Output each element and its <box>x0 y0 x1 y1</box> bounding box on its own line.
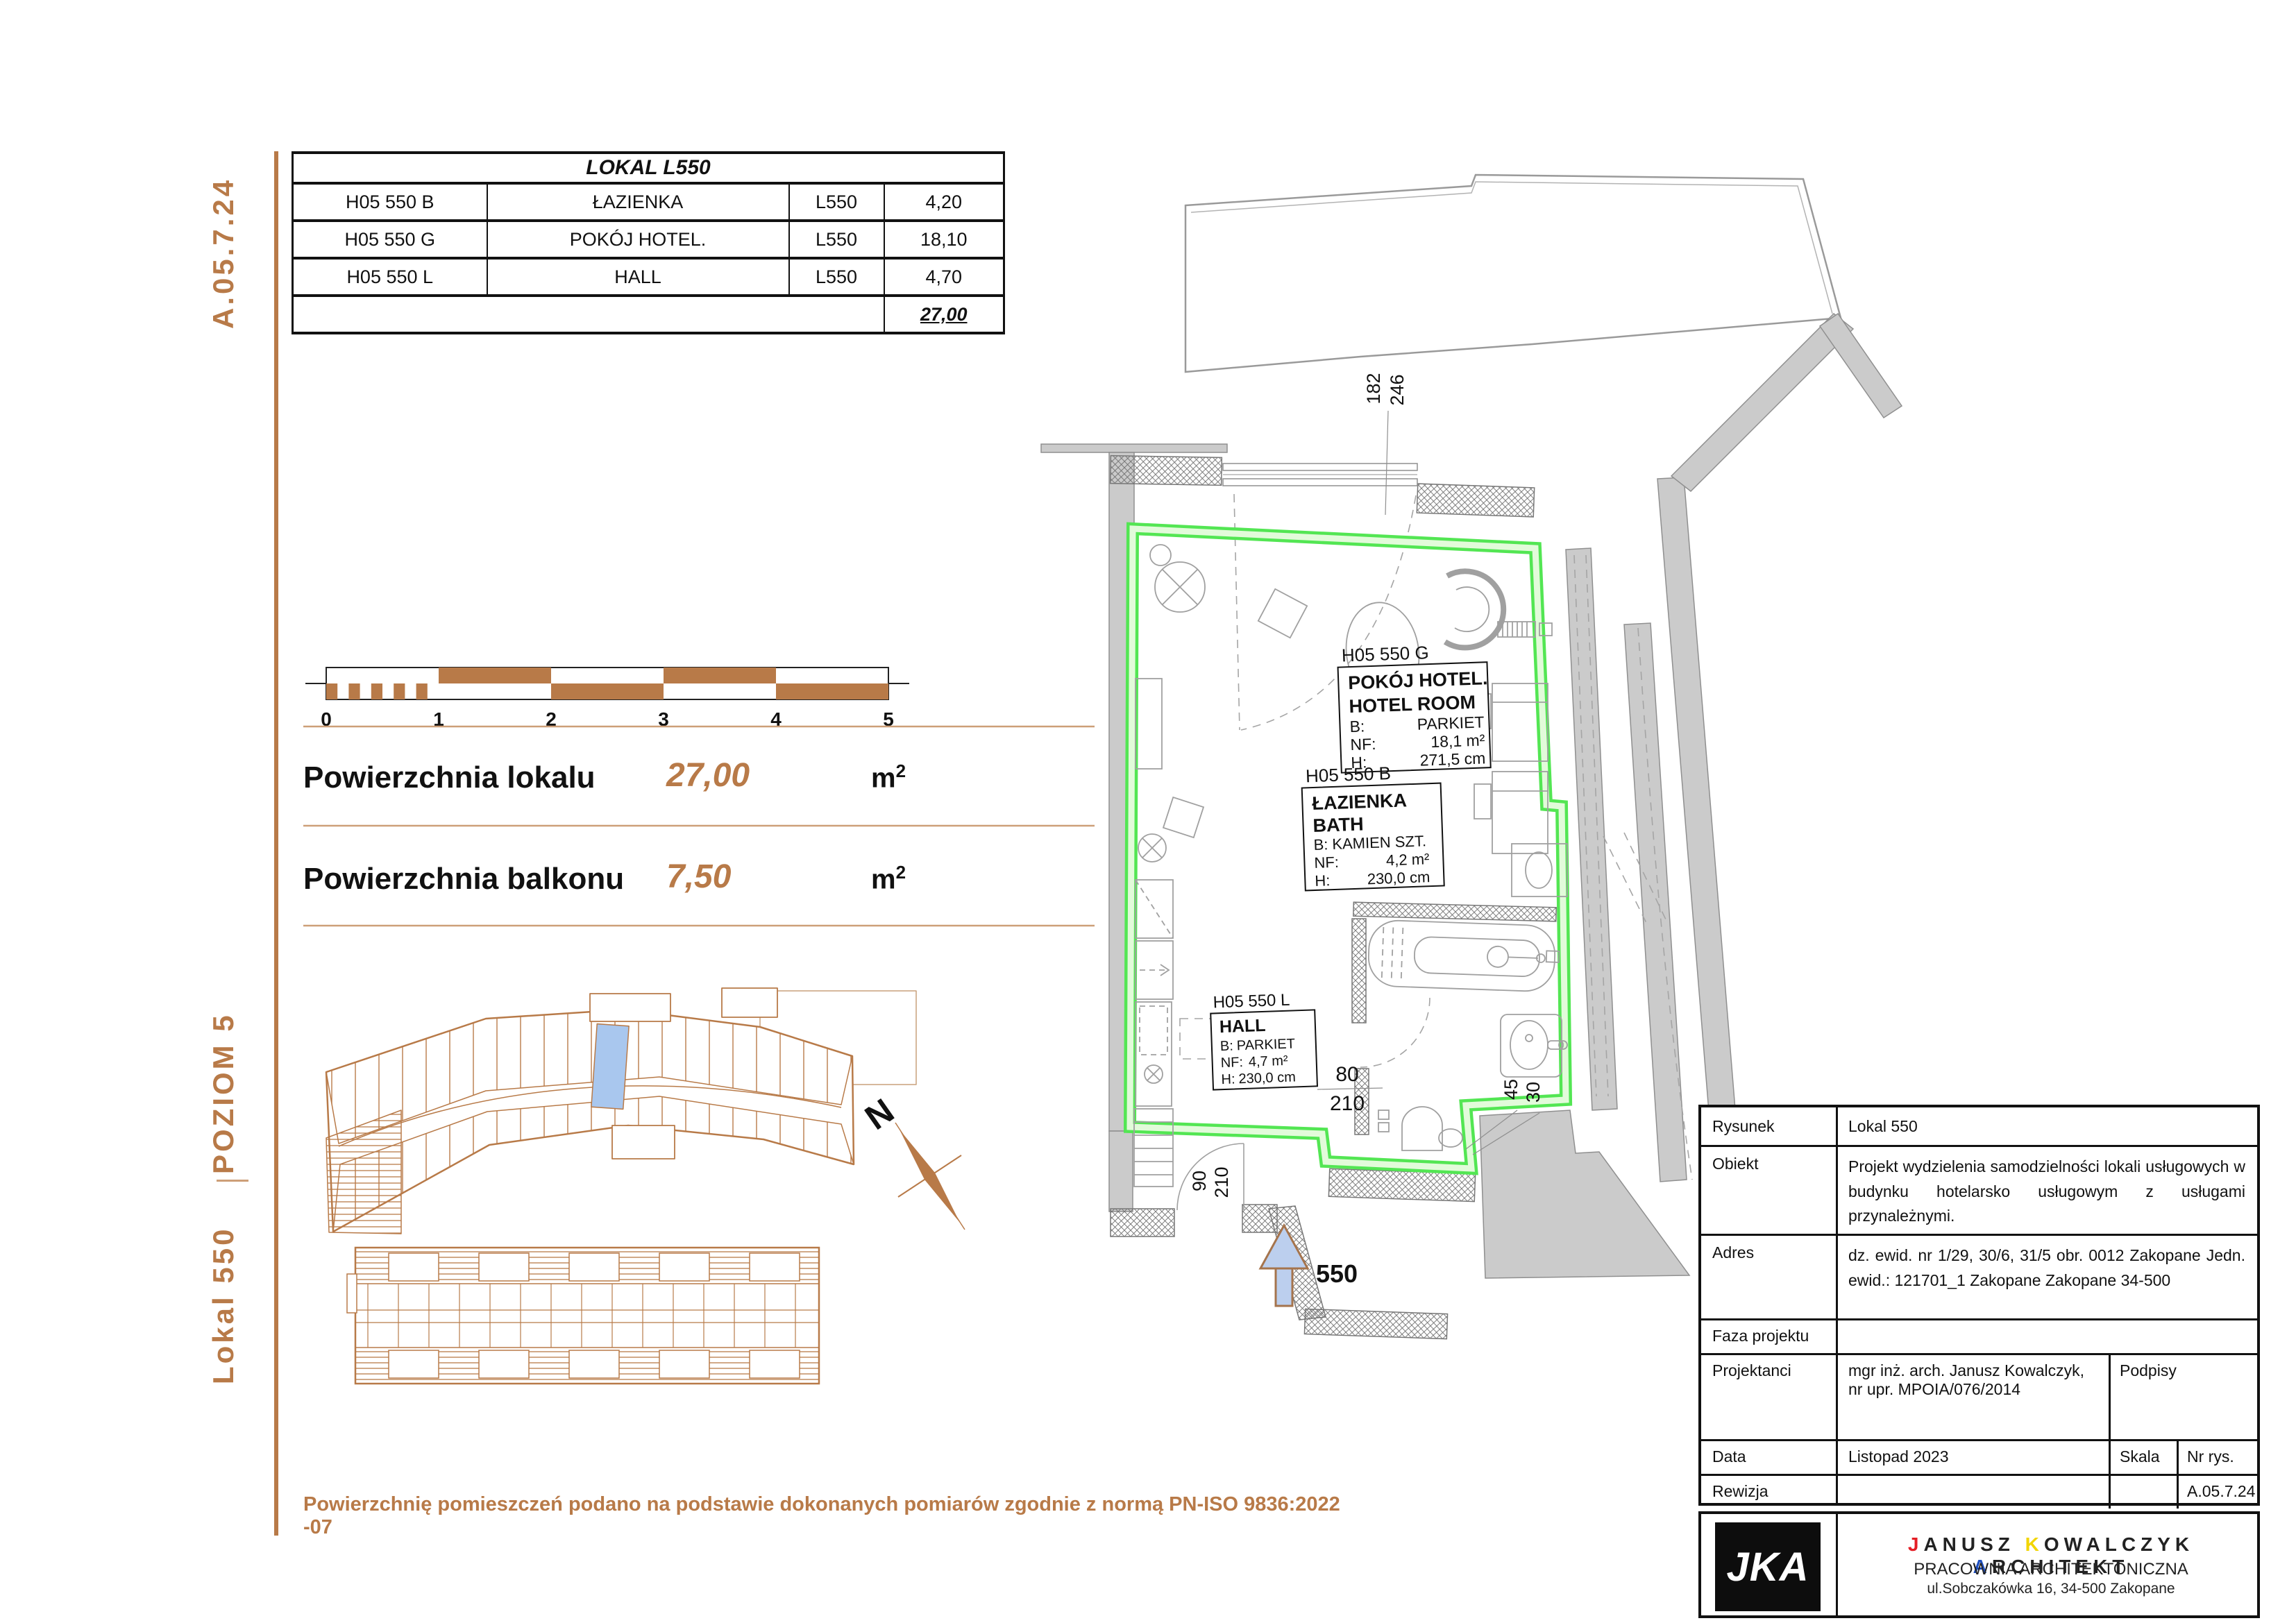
lokal-table: LOKAL L550 H05 550 B ŁAZIENKA L550 4,20 … <box>292 151 1005 334</box>
tb-nr-label: Nr rys. <box>2187 1447 2234 1466</box>
svg-text:H05 550 B: H05 550 B <box>1306 763 1392 786</box>
tb-data-value: Listopad 2023 <box>1848 1447 1949 1466</box>
dimension-entry-door: 90 210 <box>1189 1166 1232 1198</box>
tb-adres-label: Adres <box>1712 1243 1754 1262</box>
svg-text:BATH: BATH <box>1312 813 1364 836</box>
bathtub-icon <box>1367 919 1560 992</box>
area-balcony-unit: m2 <box>871 862 906 895</box>
svg-text:H05 550 G: H05 550 G <box>1341 642 1429 665</box>
area-balcony-value: 7,50 <box>666 858 731 896</box>
svg-text:30: 30 <box>1523 1082 1544 1103</box>
svg-text:H:230,0 cm: H:230,0 cm <box>1221 1069 1296 1087</box>
area-balcony-label: Powierzchnia balkonu <box>303 862 624 897</box>
svg-text:182: 182 <box>1363 373 1384 404</box>
tb-rewizja-label: Rewizja <box>1712 1482 1769 1501</box>
tb-podpisy-label: Podpisy <box>2120 1361 2177 1380</box>
level-label-vertical: POZIOM 5 <box>207 1014 240 1174</box>
tb-projektanci-value: mgr inż. arch. Janusz Kowalczyk, nr upr.… <box>1848 1361 2098 1399</box>
dimension-window: 182 246 <box>1363 373 1408 515</box>
tb-rysunek-label: Rysunek <box>1712 1117 1774 1136</box>
tb-faza-label: Faza projektu <box>1712 1327 1809 1345</box>
entry-door <box>1177 1144 1244 1210</box>
logo-address-line: ul.Sobczakówka 16, 34-500 Zakopane <box>1850 1581 2252 1597</box>
left-rail-line <box>274 151 278 1536</box>
toilet-icon <box>1378 1107 1462 1150</box>
title-block: Rysunek Lokal 550 Obiekt Projekt wydziel… <box>1698 1105 2260 1506</box>
unit-label-vertical: Lokal 550 <box>207 1232 240 1384</box>
area-local-value: 27,00 <box>666 756 750 794</box>
lokal-table-title: LOKAL L550 <box>293 153 1004 183</box>
svg-text:45: 45 <box>1501 1079 1521 1100</box>
table-total-value: 27,00 <box>884 296 1004 333</box>
key-plan-roof <box>347 1248 819 1384</box>
room-label-bath: H05 550 B ŁAZIENKA BATH B:KAMIEN SZT. NF… <box>1301 761 1444 891</box>
svg-text:ŁAZIENKA: ŁAZIENKA <box>1312 790 1407 814</box>
tb-adres-value: dz. ewid. nr 1/29, 30/6, 31/5 obr. 0012 … <box>1848 1243 2245 1293</box>
area-local-label: Powierzchnia lokalu <box>303 760 596 795</box>
room-label-hall: H05 550 L HALL B:PARKIET NF:4,7 m² H:230… <box>1210 989 1317 1089</box>
table-row: H05 550 L HALL L550 4,70 <box>293 258 1004 296</box>
key-plan-level5 <box>326 988 916 1234</box>
highlighted-unit-550 <box>591 1024 629 1110</box>
sink-icon <box>1501 1014 1567 1077</box>
terrace-outline <box>1185 175 1841 372</box>
jka-logo: JKA <box>1715 1522 1821 1611</box>
table-total-row: 27,00 <box>293 296 1004 333</box>
tb-rysunek-value: Lokal 550 <box>1848 1117 1918 1136</box>
table-row: H05 550 B ŁAZIENKA L550 4,20 <box>293 183 1004 221</box>
logo-studio-line: PRACOWNIA ARCHITEKTONICZNA <box>1850 1560 2252 1579</box>
window <box>1223 464 1417 486</box>
svg-text:H05 550 L: H05 550 L <box>1213 991 1290 1012</box>
svg-text:B:PARKIET: B:PARKIET <box>1220 1036 1296 1054</box>
svg-text:210: 210 <box>1330 1092 1365 1115</box>
svg-text:90: 90 <box>1189 1171 1210 1191</box>
tb-projektanci-label: Projektanci <box>1712 1361 1791 1380</box>
scale-bar: 0 1 2 3 4 5 <box>305 668 909 730</box>
area-summary-local: Powierzchnia lokalu 27,00 m2 <box>303 751 1095 806</box>
footer-note: Powierzchnię pomieszczeń podano na podst… <box>303 1493 1358 1539</box>
svg-text:NF:4,7 m²: NF:4,7 m² <box>1220 1053 1288 1071</box>
svg-text:210: 210 <box>1211 1166 1232 1198</box>
dimension-bath-door: 80 210 <box>1317 1063 1383 1115</box>
area-summary-balcony: Powierzchnia balkonu 7,50 m2 <box>303 852 1095 908</box>
svg-text:80: 80 <box>1335 1063 1358 1086</box>
tb-data-label: Data <box>1712 1447 1746 1466</box>
svg-text:HALL: HALL <box>1219 1016 1266 1037</box>
sheet-code-vertical: A.05.7.24 <box>207 148 240 329</box>
tb-obiekt-value: Projekt wydzielenia samodzielności lokal… <box>1848 1155 2245 1229</box>
table-row: H05 550 G POKÓJ HOTEL. L550 18,10 <box>293 221 1004 258</box>
area-local-unit: m2 <box>871 760 906 794</box>
svg-text:HOTEL ROOM: HOTEL ROOM <box>1349 692 1476 717</box>
tb-nr-value: A.05.7.24 <box>2187 1482 2255 1501</box>
north-arrow: N <box>858 1091 965 1230</box>
tb-obiekt-label: Obiekt <box>1712 1155 1758 1173</box>
sidebar-divider <box>217 1180 248 1182</box>
tb-skala-label: Skala <box>2120 1447 2160 1466</box>
entry-label: 550 <box>1316 1259 1358 1288</box>
logo-block: JKA JANUSZ KOWALCZYK ARCHITEKT PRACOWNIA… <box>1698 1511 2260 1618</box>
room-label-hotel: H05 550 G POKÓJ HOTEL. HOTEL ROOM B:PARK… <box>1337 640 1490 772</box>
svg-text:246: 246 <box>1387 374 1408 405</box>
north-label: N <box>858 1091 901 1137</box>
